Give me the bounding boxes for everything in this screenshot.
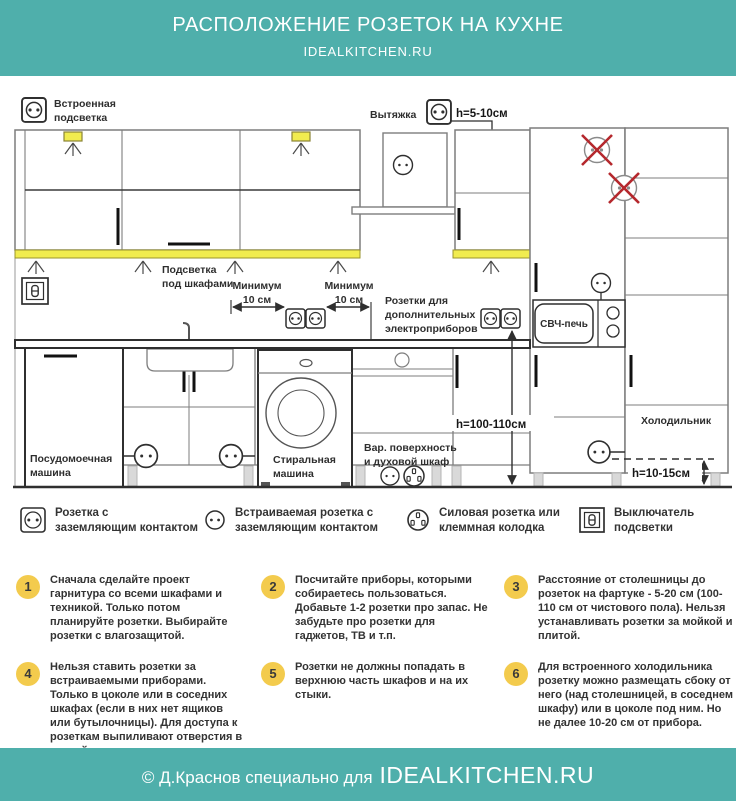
tip-number-badge: 3: [504, 575, 528, 599]
label-extra-sockets-2: дополнительных: [385, 309, 475, 321]
grounded-socket-icon: [501, 309, 520, 328]
legend-item-grounded-socket: Розетка с заземляющим контактом: [20, 506, 198, 535]
under-cabinet-light-strip: [15, 250, 531, 274]
tip-4: 4 Нельзя ставить розетки за встраиваемым…: [16, 660, 246, 758]
label-hood-socket-height: h=5-10см: [456, 108, 508, 120]
grounded-socket-icon: [286, 309, 305, 328]
page: РАСПОЛОЖЕНИЕ РОЗЕТОК НА КУХНЕ IDEALKITCH…: [0, 0, 736, 801]
tip-text: Сначала сделайте проект гарнитура со все…: [50, 573, 246, 643]
countertop: [15, 340, 530, 348]
tip-number-badge: 1: [16, 575, 40, 599]
footer: © Д.Краснов специально дляIDEALKITCHEN.R…: [0, 748, 736, 801]
tip-number-badge: 2: [261, 575, 285, 599]
label-min-gap-right-2: 10 см: [335, 294, 363, 306]
header-site-url: IDEALKITCHEN.RU: [0, 44, 736, 59]
power-socket-icon: [404, 466, 424, 486]
power-socket-icon: [406, 508, 430, 532]
label-dishwasher-2: машина: [30, 467, 71, 479]
tip-text: Розетки не должны попадать в верхнюю час…: [295, 660, 491, 702]
crossed-socket-icon: [609, 173, 639, 203]
crossed-socket-icon: [582, 135, 612, 165]
legend-label: подсветки: [614, 521, 694, 536]
label-built-in-light-1: Встроенная: [54, 98, 116, 110]
tip-text: Посчитайте приборы, которыми собираетесь…: [295, 573, 491, 643]
footer-credit: © Д.Краснов специально для: [142, 768, 373, 787]
legend-item-light-switch: Выключатель подсветки: [579, 506, 694, 535]
legend-label: заземляющим контактом: [55, 521, 198, 536]
legend-label: Выключатель: [614, 506, 694, 521]
legend-item-recessed-socket: Встраиваемая розетка с заземляющим конта…: [204, 506, 378, 535]
label-dishwasher-1: Посудомоечная: [30, 453, 112, 465]
legend-label: Встраиваемая розетка с: [235, 506, 378, 521]
recessed-socket-icon: [592, 274, 611, 293]
tip-number-badge: 4: [16, 662, 40, 686]
tip-text: Расстояние от столешницы до розеток на ф…: [538, 573, 734, 643]
light-switch-icon: [22, 278, 48, 304]
recessed-socket-icon: [394, 156, 413, 175]
label-under-cabinet-light-1: Подсветка: [162, 264, 217, 276]
recessed-socket-icon: [135, 445, 158, 468]
upper-cabinets: [15, 130, 360, 250]
label-under-cabinet-light-2: под шкафами: [162, 278, 233, 290]
label-fridge-socket-height: h=10-15см: [632, 468, 690, 480]
label-cooktop-1: Вар. поверхность: [364, 442, 457, 454]
recessed-socket-icon: [220, 445, 243, 468]
grounded-socket-icon: [306, 309, 325, 328]
page-title: РАСПОЛОЖЕНИЕ РОЗЕТОК НА КУХНЕ: [0, 0, 736, 37]
tip-2: 2 Посчитайте приборы, которыми собираете…: [261, 573, 491, 643]
tip-text: Для встроенного холодильника розетку мож…: [538, 660, 734, 730]
grounded-socket-icon: [22, 98, 46, 122]
label-hood: Вытяжка: [370, 109, 417, 121]
light-switch-icon: [579, 507, 605, 533]
label-min-gap-right-1: Минимум: [324, 280, 373, 292]
legend-label: Силовая розетка или: [439, 506, 560, 521]
label-microwave: СВЧ-печь: [540, 319, 588, 330]
tip-5: 5 Розетки не должны попадать в верхнюю ч…: [261, 660, 491, 702]
label-min-gap-left-2: 10 см: [243, 294, 271, 306]
washing-machine: Стиральная машина: [258, 350, 352, 487]
header: РАСПОЛОЖЕНИЕ РОЗЕТОК НА КУХНЕ IDEALKITCH…: [0, 0, 736, 76]
legend-item-power-socket: Силовая розетка или клеммная колодка: [406, 506, 560, 535]
upper-cabinet-right: [455, 130, 530, 250]
recessed-socket-icon: [588, 441, 610, 463]
label-extra-sockets-3: электроприборов: [385, 323, 478, 335]
label-extra-sockets-1: Розетки для: [385, 295, 448, 307]
legend: Розетка с заземляющим контактом Встраива…: [0, 503, 736, 553]
hood-height-connector: [451, 121, 492, 130]
kitchen-socket-diagram: Встроенная подсветка Вытяжка h=5-10см: [0, 85, 736, 505]
tip-3: 3 Расстояние от столешницы до розеток на…: [504, 573, 734, 643]
legend-label: Розетка с: [55, 506, 198, 521]
grounded-socket-icon: [481, 309, 500, 328]
tip-text: Нельзя ставить розетки за встраиваемыми …: [50, 660, 246, 758]
tip-6: 6 Для встроенного холодильника розетку м…: [504, 660, 734, 730]
label-min-gap-left-1: Минимум: [232, 280, 281, 292]
tip-1: 1 Сначала сделайте проект гарнитура со в…: [16, 573, 246, 643]
label-built-in-light-2: подсветка: [54, 112, 107, 124]
label-splash-socket-height: h=100-110см: [456, 419, 526, 431]
dishwasher: Посудомоечная машина: [25, 348, 123, 487]
label-fridge: Холодильник: [641, 415, 712, 427]
recessed-socket-icon: [204, 509, 226, 531]
legend-label: заземляющим контактом: [235, 521, 378, 536]
tip-number-badge: 6: [504, 662, 528, 686]
grounded-socket-icon: [427, 100, 451, 124]
microwave: СВЧ-печь: [533, 300, 625, 347]
label-washer-1: Стиральная: [273, 454, 336, 466]
tip-number-badge: 5: [261, 662, 285, 686]
label-washer-2: машина: [273, 468, 314, 480]
recessed-socket-icon: [381, 467, 399, 485]
grounded-socket-icon: [20, 507, 46, 533]
legend-label: клеммная колодка: [439, 521, 560, 536]
footer-site-url: IDEALKITCHEN.RU: [380, 762, 595, 788]
